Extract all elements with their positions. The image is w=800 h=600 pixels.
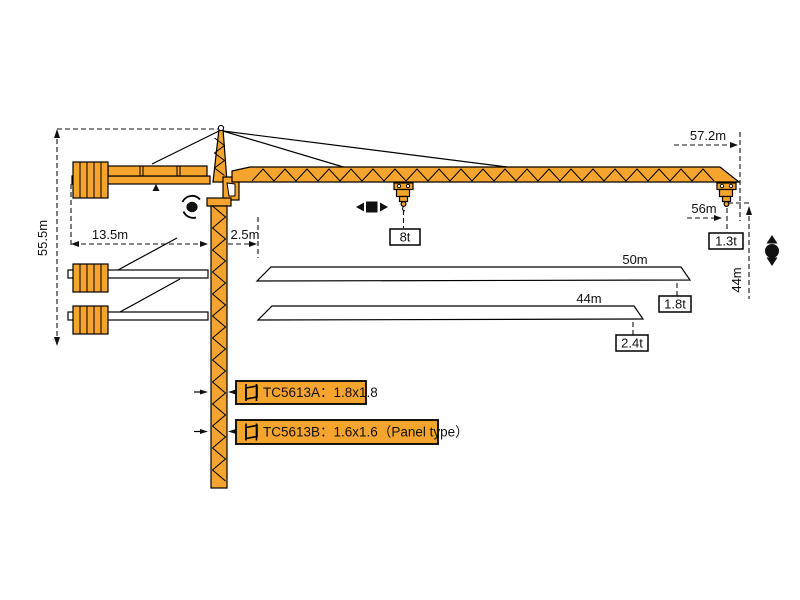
tower-crane-diagram: 55.5m	[0, 0, 800, 600]
jib-length-label: 57.2m	[690, 128, 726, 143]
tie-bar-right-short	[223, 131, 350, 169]
counterweight-block	[73, 162, 108, 198]
mast	[211, 206, 227, 488]
counterweight-block	[73, 264, 108, 292]
tower-height-label: 55.5m	[35, 220, 50, 256]
trolley-mid	[394, 183, 413, 211]
mast-section-callout-b: TC5613B：1.6x1.6（Panel type）	[194, 420, 469, 444]
tip-height-label: 44m	[729, 267, 744, 292]
load-1-8t-label: 1.8t	[664, 297, 686, 312]
jib-44m-label: 44m	[576, 291, 601, 306]
tie-anchor-marker	[153, 184, 160, 191]
load-8t-label: 8t	[400, 230, 411, 245]
counter-jib-variant-50m	[68, 238, 208, 292]
counterweight-block	[73, 306, 108, 334]
rotation-icon	[183, 196, 201, 218]
load-badge-8t: 8t	[390, 229, 420, 245]
counter-jib-radius-label: 13.5m	[92, 227, 128, 242]
variant-b-label: TC5613B：1.6x1.6（Panel type）	[263, 425, 469, 440]
trolley-tip	[717, 183, 736, 206]
load-badge-1-3t: 1.3t	[709, 233, 743, 249]
jib-50m-label: 50m	[622, 252, 647, 267]
variant-a-label: TC5613A：1.8x1.8	[263, 385, 378, 400]
load-2-4t-label: 2.4t	[621, 336, 643, 351]
load-1-3t-label: 1.3t	[715, 234, 737, 249]
hook-icon	[401, 202, 406, 207]
hoist-icon	[765, 235, 779, 266]
tie-bar-right-long	[223, 131, 523, 169]
rear-offset-label: 2.5m	[231, 227, 260, 242]
jib-outline-50m: 50m 1.8t	[257, 252, 691, 312]
hook-icon	[724, 202, 729, 207]
jib	[232, 167, 739, 182]
dimension-tip-height: 44m	[728, 203, 752, 299]
tie-bar-left	[152, 131, 219, 164]
apex-pin	[218, 125, 223, 130]
hook-radius-label: 56m	[691, 201, 716, 216]
turntable	[207, 198, 231, 206]
dimension-rear-offset: 2.5m	[228, 217, 259, 258]
jib-outline-44m: 44m 2.4t	[258, 291, 648, 351]
trolley-travel-icon	[356, 202, 388, 213]
dimension-hook-radius: 56m	[687, 201, 722, 221]
counter-jib	[72, 162, 210, 198]
